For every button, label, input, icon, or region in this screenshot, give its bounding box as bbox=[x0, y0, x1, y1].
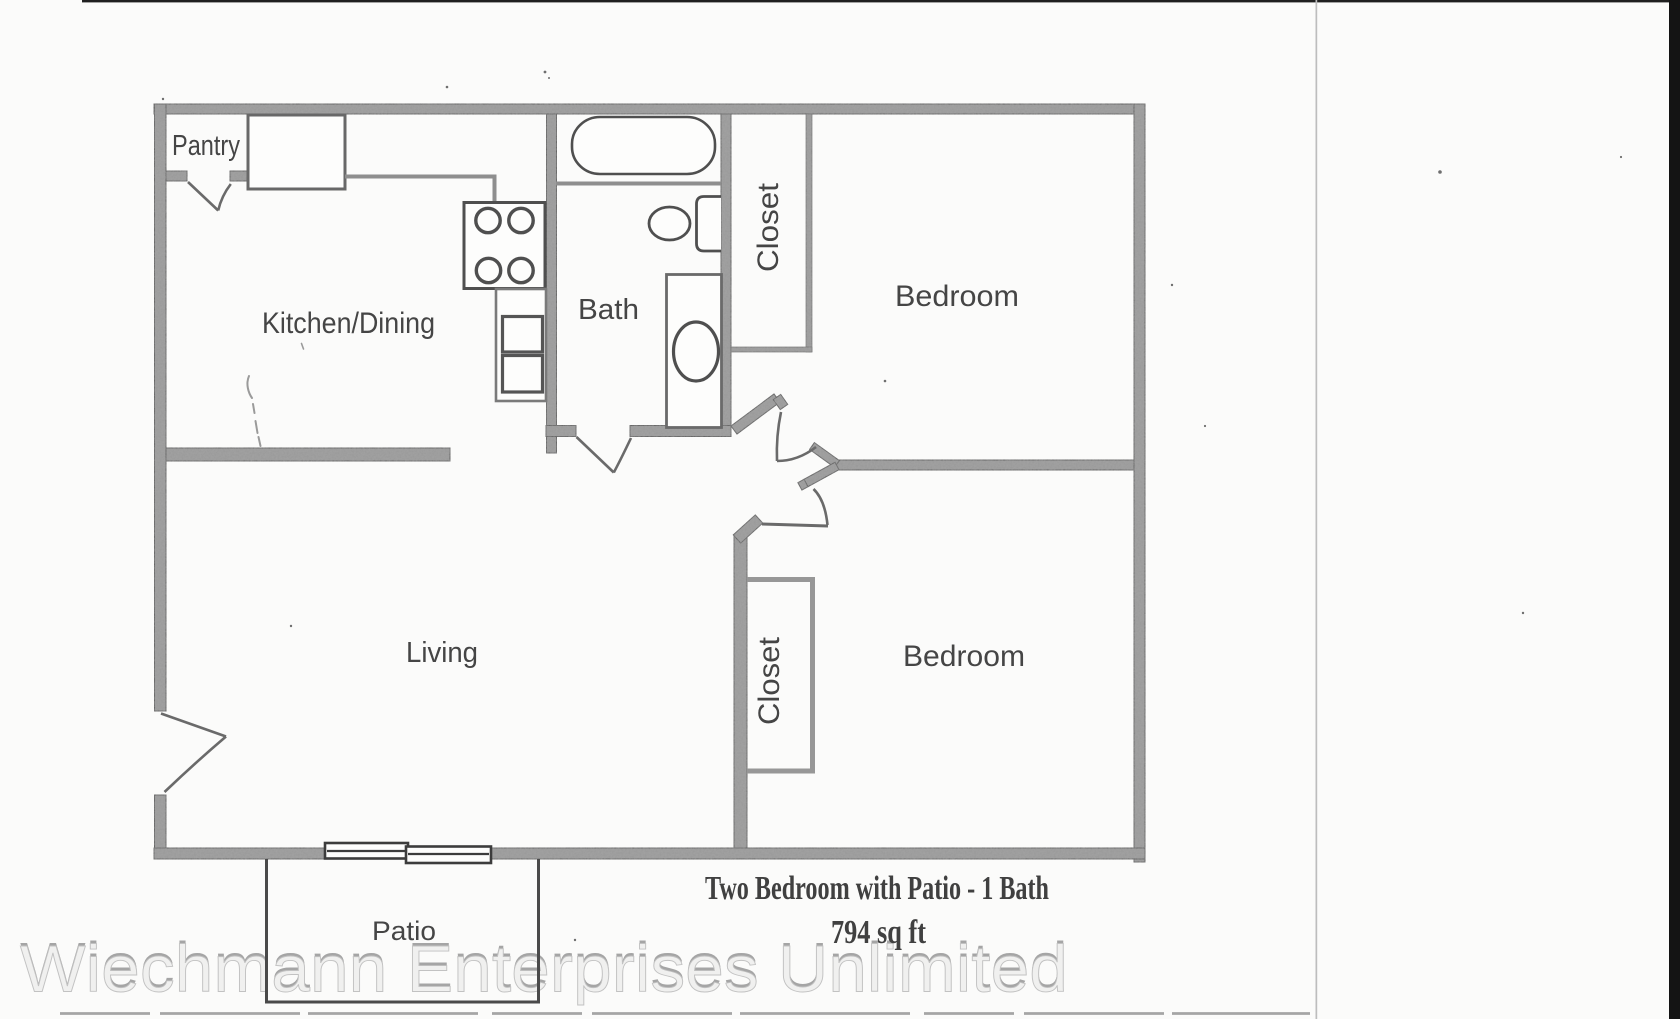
svg-text:Pantry: Pantry bbox=[172, 130, 240, 162]
svg-text:Closet: Closet bbox=[752, 182, 785, 272]
svg-text:Kitchen/Dining: Kitchen/Dining bbox=[262, 307, 435, 340]
svg-text:Patio: Patio bbox=[372, 916, 436, 946]
svg-text:Bedroom: Bedroom bbox=[895, 280, 1019, 313]
svg-text:Bedroom: Bedroom bbox=[903, 640, 1025, 673]
svg-text:Closet: Closet bbox=[753, 636, 786, 725]
svg-text:794 sq ft: 794 sq ft bbox=[831, 914, 927, 951]
svg-text:Two Bedroom with Patio - 1 Bat: Two Bedroom with Patio - 1 Bath bbox=[705, 870, 1049, 907]
svg-text:Living: Living bbox=[406, 637, 478, 669]
svg-text:Bath: Bath bbox=[578, 294, 639, 326]
